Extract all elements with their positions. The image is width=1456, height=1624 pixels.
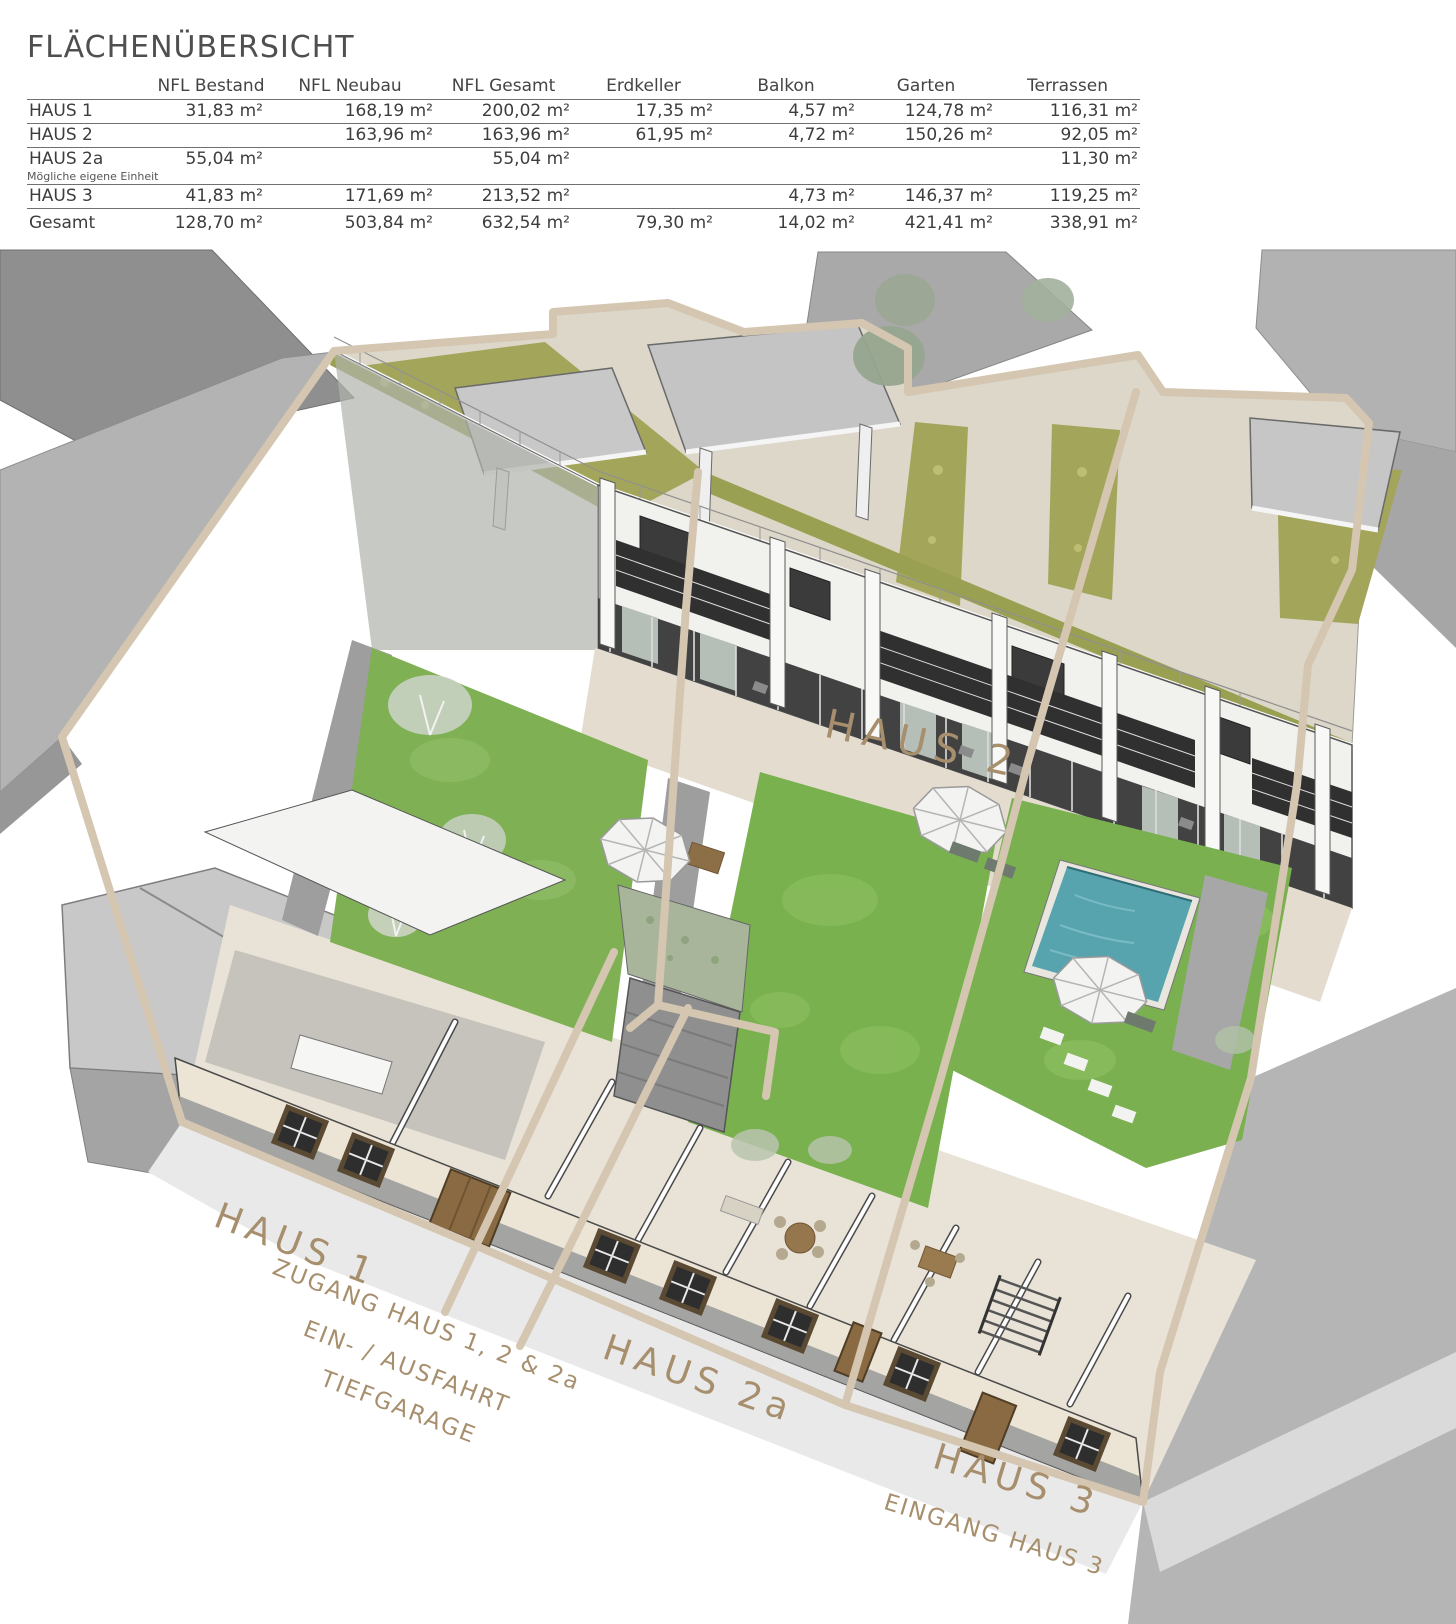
cell: 200,02 m² — [435, 100, 572, 124]
col-header-balkon: Balkon — [715, 74, 857, 100]
cell: 146,37 m² — [857, 185, 995, 209]
cell: 11,30 m² — [995, 148, 1140, 172]
cell: 171,69 m² — [265, 185, 435, 209]
row-label: HAUS 3 — [27, 185, 157, 209]
cell: 163,96 m² — [265, 124, 435, 148]
cell: 41,83 m² — [157, 185, 265, 209]
cell — [265, 148, 435, 172]
table-header-row: NFL Bestand NFL Neubau NFL Gesamt Erdkel… — [27, 74, 1140, 100]
col-header-nfl-gesamt: NFL Gesamt — [435, 74, 572, 100]
col-header-terrassen: Terrassen — [995, 74, 1140, 100]
cell — [715, 148, 857, 172]
cell: 150,26 m² — [857, 124, 995, 148]
cell — [572, 185, 715, 209]
table-row-haus2a: HAUS 2a 55,04 m² 55,04 m² 11,30 m² — [27, 148, 1140, 172]
cell: 116,31 m² — [995, 100, 1140, 124]
col-header-erdkeller: Erdkeller — [572, 74, 715, 100]
cell: 31,83 m² — [157, 100, 265, 124]
site-rendering: HAUS 2 HAUS 1 ZUGANG HAUS 1, 2 & 2a EIN-… — [0, 228, 1456, 1624]
row-label: HAUS 2a — [27, 148, 157, 172]
cell: 213,52 m² — [435, 185, 572, 209]
row-note: Mögliche eigene Einheit — [27, 171, 1140, 185]
cell: 4,73 m² — [715, 185, 857, 209]
cell: 168,19 m² — [265, 100, 435, 124]
cell — [857, 148, 995, 172]
cell: 4,72 m² — [715, 124, 857, 148]
table-row-haus1: HAUS 1 31,83 m² 168,19 m² 200,02 m² 17,3… — [27, 100, 1140, 124]
table-row-haus2: HAUS 2 163,96 m² 163,96 m² 61,95 m² 4,72… — [27, 124, 1140, 148]
page: FLÄCHENÜBERSICHT NFL Bestand NFL Neubau … — [0, 0, 1456, 1624]
cell: 17,35 m² — [572, 100, 715, 124]
row-label: HAUS 2 — [27, 124, 157, 148]
cell: 124,78 m² — [857, 100, 995, 124]
col-header-nfl-bestand: NFL Bestand — [157, 74, 265, 100]
page-title: FLÄCHENÜBERSICHT — [27, 30, 355, 65]
cell — [572, 148, 715, 172]
cell — [157, 124, 265, 148]
row-label: HAUS 1 — [27, 100, 157, 124]
cell: 163,96 m² — [435, 124, 572, 148]
table-row-haus3: HAUS 3 41,83 m² 171,69 m² 213,52 m² 4,73… — [27, 185, 1140, 209]
col-header-garten: Garten — [857, 74, 995, 100]
table-row-haus2a-note: Mögliche eigene Einheit — [27, 171, 1140, 185]
header-empty — [27, 74, 157, 100]
cell: 55,04 m² — [435, 148, 572, 172]
area-overview-table: NFL Bestand NFL Neubau NFL Gesamt Erdkel… — [27, 74, 1140, 235]
cell: 92,05 m² — [995, 124, 1140, 148]
cell: 61,95 m² — [572, 124, 715, 148]
cell: 4,57 m² — [715, 100, 857, 124]
col-header-nfl-neubau: NFL Neubau — [265, 74, 435, 100]
cell: 119,25 m² — [995, 185, 1140, 209]
cell: 55,04 m² — [157, 148, 265, 172]
